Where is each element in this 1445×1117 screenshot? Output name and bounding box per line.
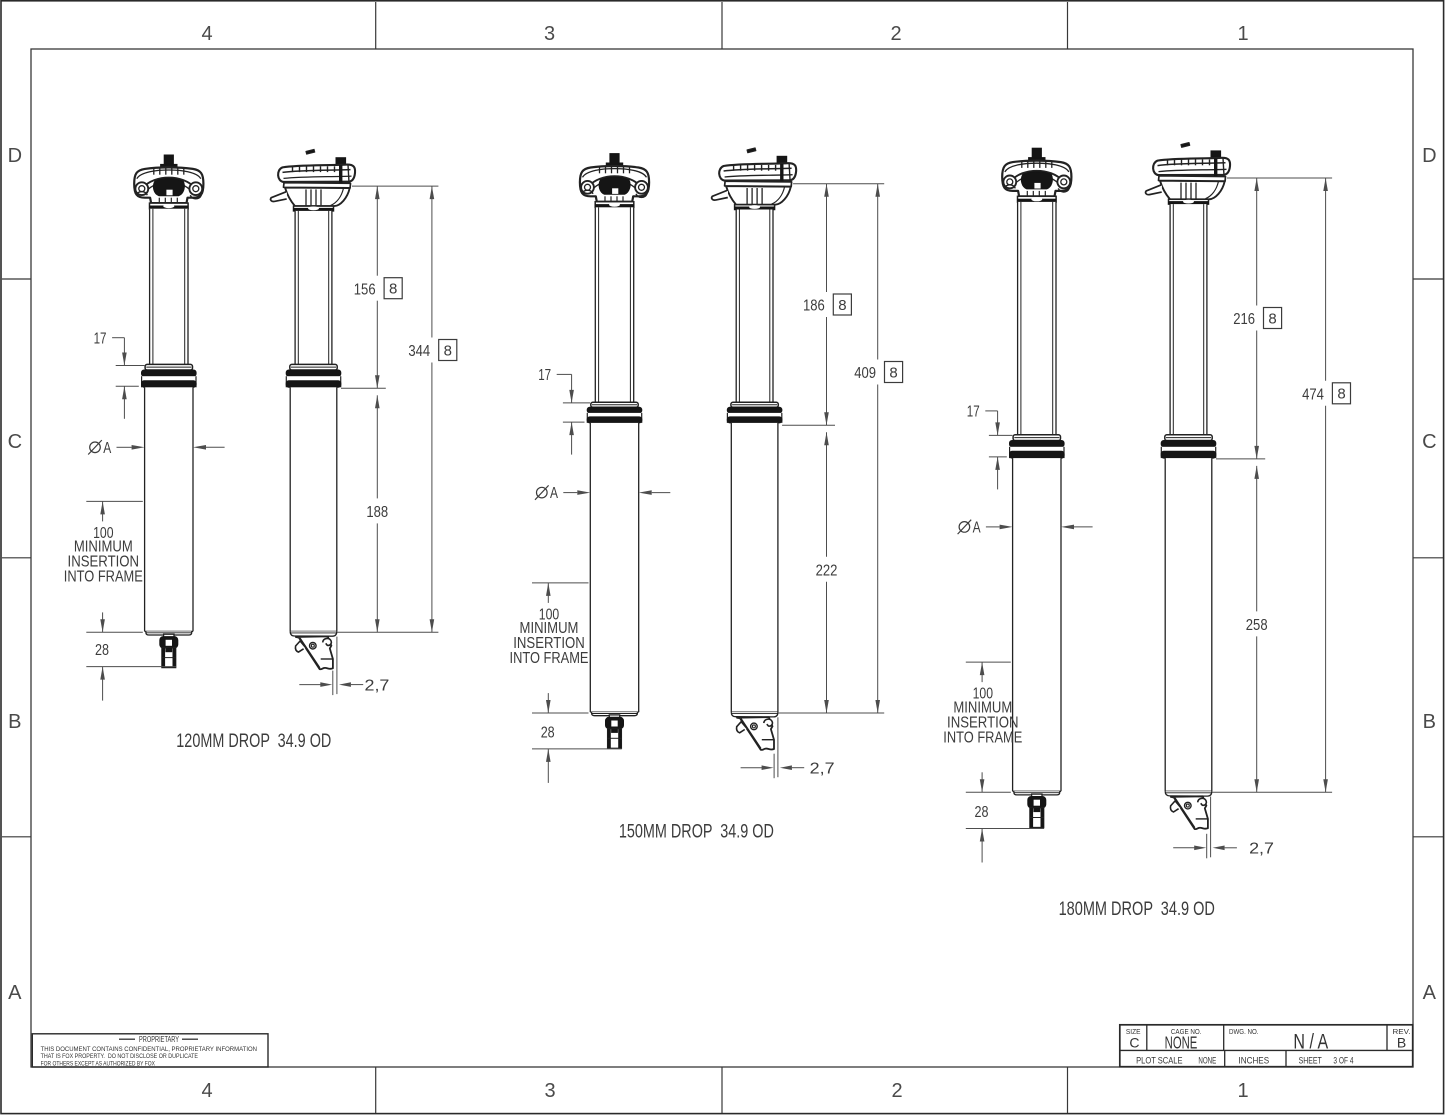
- svg-text:A: A: [8, 982, 22, 1004]
- svg-text:THAT IS FOX PROPERTY. DO NOT: THAT IS FOX PROPERTY. DO NOT DISCLOSE OR…: [41, 1053, 198, 1060]
- svg-text:4: 4: [201, 1080, 212, 1102]
- svg-text:A: A: [550, 485, 559, 502]
- svg-text:FOR OTHERS EXCEPT AS AUTHORIZE: FOR OTHERS EXCEPT AS AUTHORIZED BY FOX: [41, 1060, 156, 1067]
- svg-text:150MM DROP 34.9 OD: 150MM DROP 34.9 OD: [619, 821, 774, 843]
- svg-text:A: A: [973, 520, 982, 537]
- svg-text:156: 156: [354, 281, 376, 298]
- svg-text:C: C: [1129, 1035, 1139, 1051]
- svg-text:INCHES: INCHES: [1239, 1056, 1270, 1066]
- svg-text:8: 8: [389, 281, 397, 298]
- svg-text:8: 8: [1268, 310, 1276, 327]
- svg-text:C: C: [8, 431, 22, 453]
- svg-text:INTO FRAME: INTO FRAME: [510, 650, 589, 667]
- svg-text:1: 1: [1237, 1080, 1248, 1102]
- svg-text:3: 3: [544, 23, 555, 45]
- svg-text:DWG. NO.: DWG. NO.: [1229, 1027, 1259, 1036]
- svg-text:B: B: [1423, 711, 1436, 733]
- svg-text:SHEET: SHEET: [1299, 1056, 1323, 1066]
- svg-text:2,7: 2,7: [1249, 841, 1274, 858]
- svg-text:INTO FRAME: INTO FRAME: [64, 569, 143, 586]
- svg-text:NONE: NONE: [1165, 1033, 1198, 1053]
- svg-text:8: 8: [889, 364, 897, 381]
- svg-text:PROPRIETARY: PROPRIETARY: [139, 1035, 179, 1044]
- svg-text:28: 28: [541, 724, 555, 741]
- svg-text:N / A: N / A: [1293, 1031, 1328, 1054]
- svg-text:258: 258: [1246, 617, 1268, 634]
- svg-text:17: 17: [967, 404, 980, 421]
- svg-text:8: 8: [444, 342, 452, 359]
- svg-text:NONE: NONE: [1198, 1056, 1216, 1066]
- svg-text:2: 2: [891, 1080, 902, 1102]
- svg-text:C: C: [1422, 431, 1436, 453]
- svg-text:THIS DOCUMENT CONTAINS CONFIDE: THIS DOCUMENT CONTAINS CONFIDENTIAL, PRO…: [41, 1046, 258, 1053]
- svg-text:17: 17: [94, 330, 107, 347]
- svg-text:28: 28: [95, 642, 109, 659]
- svg-text:188: 188: [366, 504, 388, 521]
- svg-text:2,7: 2,7: [810, 761, 835, 778]
- svg-text:344: 344: [408, 343, 430, 360]
- svg-text:17: 17: [538, 367, 551, 384]
- svg-text:2: 2: [890, 23, 901, 45]
- svg-text:3: 3: [544, 1080, 555, 1102]
- svg-text:186: 186: [803, 298, 825, 315]
- svg-text:INTO FRAME: INTO FRAME: [943, 729, 1022, 746]
- svg-text:4: 4: [201, 23, 212, 45]
- svg-text:2,7: 2,7: [365, 677, 390, 694]
- svg-text:1: 1: [1237, 23, 1248, 45]
- svg-text:120MM DROP 34.9 OD: 120MM DROP 34.9 OD: [176, 730, 331, 752]
- svg-text:D: D: [8, 145, 22, 167]
- svg-text:8: 8: [1337, 386, 1345, 403]
- svg-text:216: 216: [1233, 311, 1255, 328]
- svg-text:D: D: [1422, 145, 1436, 167]
- svg-text:409: 409: [854, 365, 876, 382]
- svg-text:A: A: [1423, 982, 1437, 1004]
- svg-text:3 OF 4: 3 OF 4: [1333, 1056, 1353, 1066]
- svg-text:B: B: [1397, 1035, 1406, 1051]
- svg-text:A: A: [103, 440, 112, 457]
- svg-text:222: 222: [816, 563, 838, 580]
- svg-text:PLOT SCALE: PLOT SCALE: [1136, 1056, 1182, 1066]
- svg-text:180MM DROP 34.9 OD: 180MM DROP 34.9 OD: [1059, 898, 1215, 920]
- svg-text:B: B: [8, 711, 21, 733]
- svg-text:28: 28: [975, 804, 989, 821]
- svg-text:8: 8: [838, 297, 846, 314]
- svg-text:474: 474: [1302, 387, 1324, 404]
